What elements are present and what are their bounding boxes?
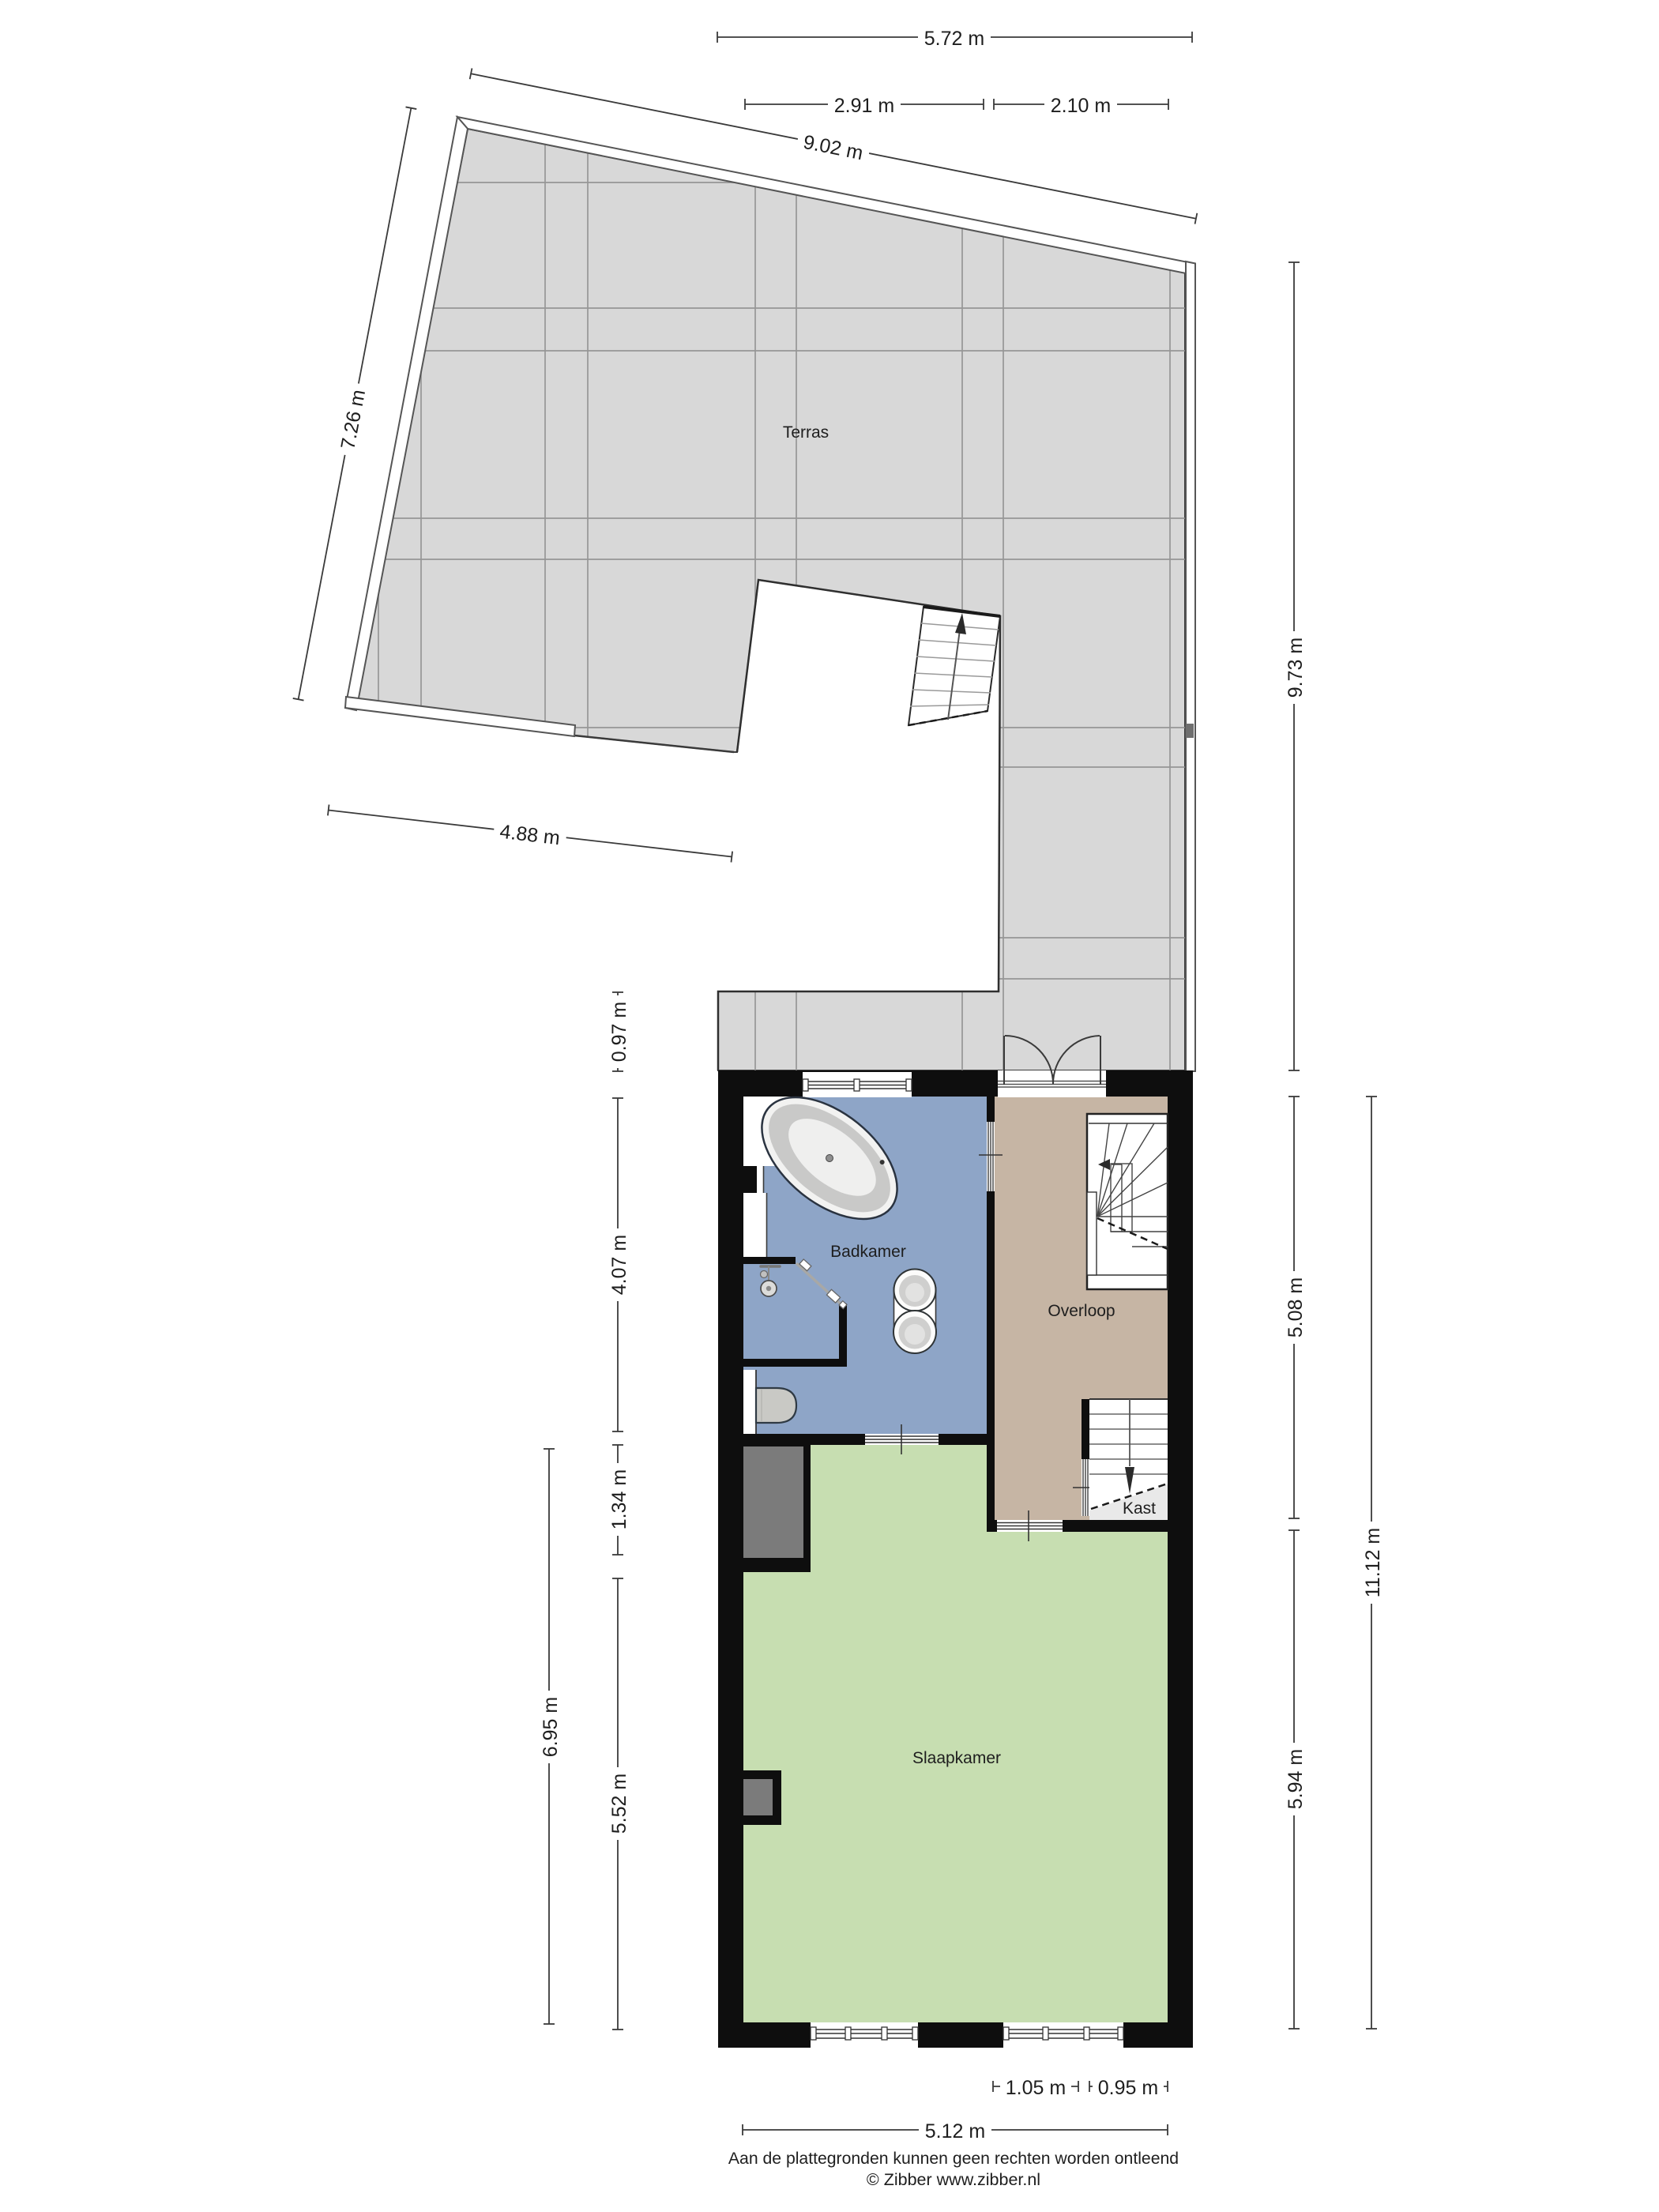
- svg-text:2.91 m: 2.91 m: [834, 95, 894, 117]
- svg-text:11.12 m: 11.12 m: [1362, 1528, 1384, 1597]
- svg-text:Kast: Kast: [1123, 1499, 1156, 1518]
- svg-text:Overloop: Overloop: [1048, 1302, 1115, 1320]
- svg-text:5.94 m: 5.94 m: [1285, 1749, 1307, 1809]
- svg-text:5.52 m: 5.52 m: [608, 1774, 630, 1834]
- svg-text:Aan de plattegronden kunnen ge: Aan de plattegronden kunnen geen rechten…: [728, 2150, 1179, 2168]
- svg-text:Badkamer: Badkamer: [830, 1243, 906, 1261]
- svg-text:5.12 m: 5.12 m: [925, 2120, 985, 2142]
- svg-text:6.95 m: 6.95 m: [540, 1697, 562, 1757]
- svg-text:© Zibber www.zibber.nl: © Zibber www.zibber.nl: [867, 2170, 1040, 2189]
- svg-text:0.95 m: 0.95 m: [1098, 2077, 1158, 2099]
- svg-text:0.97 m: 0.97 m: [608, 1002, 630, 1062]
- svg-text:1.05 m: 1.05 m: [1006, 2077, 1066, 2099]
- svg-text:4.07 m: 4.07 m: [608, 1235, 630, 1295]
- svg-text:1.34 m: 1.34 m: [608, 1469, 630, 1529]
- svg-text:5.72 m: 5.72 m: [924, 28, 984, 50]
- svg-text:2.10 m: 2.10 m: [1051, 95, 1111, 117]
- svg-text:5.08 m: 5.08 m: [1285, 1277, 1307, 1337]
- svg-text:Slaapkamer: Slaapkamer: [912, 1749, 1001, 1767]
- svg-text:Terras: Terras: [783, 423, 829, 442]
- svg-text:9.73 m: 9.73 m: [1285, 638, 1307, 698]
